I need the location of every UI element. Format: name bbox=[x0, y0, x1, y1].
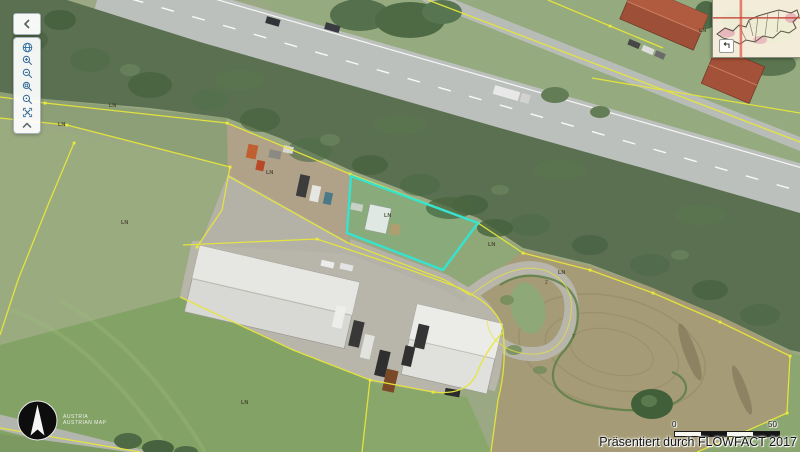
zoom-extent-button[interactable] bbox=[17, 93, 37, 105]
parcel-label: LN bbox=[58, 122, 65, 128]
scale-start-label: 0 bbox=[672, 420, 676, 429]
toolbar-scroll-up-button[interactable] bbox=[17, 119, 37, 131]
map-viewer: LN LN LN LN LN LN LN LN LN 2 7 bbox=[0, 0, 800, 452]
zoom-window-button[interactable] bbox=[17, 80, 37, 92]
corner-arrow-icon bbox=[722, 42, 731, 50]
overview-map[interactable] bbox=[712, 0, 800, 58]
parcel-label: LN bbox=[266, 170, 273, 176]
parcel-label: LN bbox=[241, 400, 248, 406]
parcel-label: LN bbox=[109, 103, 116, 109]
parcel-label: LN bbox=[558, 270, 565, 276]
zoom-out-button[interactable] bbox=[17, 67, 37, 79]
zoom-in-button[interactable] bbox=[17, 54, 37, 66]
scale-end-label: 50 bbox=[768, 420, 777, 429]
parcel-label: LN bbox=[699, 28, 706, 34]
chevron-left-icon bbox=[23, 19, 31, 29]
magnifier-box-icon bbox=[22, 81, 33, 92]
map-toolbar bbox=[13, 37, 41, 134]
pan-fullscreen-button[interactable] bbox=[17, 106, 37, 118]
magnifier-minus-icon bbox=[22, 68, 33, 79]
magnifier-plus-icon bbox=[22, 55, 33, 66]
parcel-number: 2 bbox=[545, 280, 548, 286]
overview-collapse-button[interactable] bbox=[719, 39, 734, 53]
globe-icon bbox=[22, 42, 33, 53]
parcel-number: 7 bbox=[572, 334, 575, 340]
chevron-up-icon bbox=[22, 122, 32, 129]
parcel-label: LN bbox=[384, 213, 391, 219]
parcel-label: LN bbox=[121, 220, 128, 226]
aerial-map[interactable]: LN LN LN LN LN LN LN LN LN 2 7 bbox=[0, 0, 800, 452]
toolbar-collapse-button[interactable] bbox=[13, 13, 41, 35]
attribution-text: Präsentiert durch FLOWFACT 2017 bbox=[599, 435, 797, 449]
magnifier-dot-icon bbox=[22, 94, 33, 105]
overview-button[interactable] bbox=[17, 41, 37, 53]
expand-arrows-icon bbox=[22, 107, 33, 118]
parcel-label: LN bbox=[488, 242, 495, 248]
